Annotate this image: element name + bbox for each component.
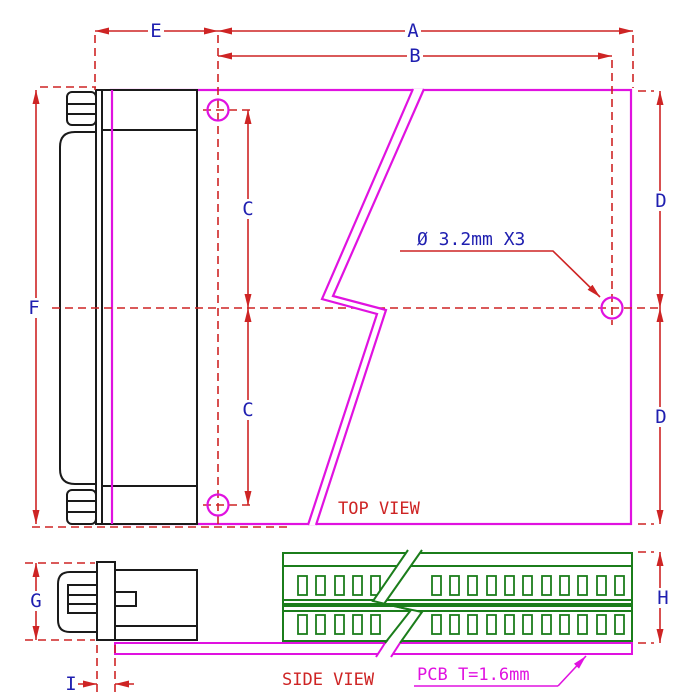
dim-label-g: G [30, 590, 41, 612]
terminal-slot [468, 576, 477, 595]
terminal-slot [578, 615, 587, 634]
terminal-slot [316, 576, 325, 595]
terminal-slot [468, 615, 477, 634]
dim-label-a: A [407, 20, 419, 42]
dim-label-d-upper: D [655, 190, 666, 212]
terminal-slot [371, 615, 380, 634]
terminal-slot [597, 576, 606, 595]
terminal-slot [578, 576, 587, 595]
terminal-slot [353, 576, 362, 595]
terminal-slot [597, 615, 606, 634]
jackscrew-top [67, 92, 96, 125]
terminal-slot [298, 615, 307, 634]
terminal-slot [542, 615, 551, 634]
terminal-slot [505, 576, 514, 595]
terminal-slot [615, 615, 624, 634]
top-view: E A B C C D D F Ø 3.2mm X3 TOP VIEW [26, 20, 669, 527]
dsub-connector-side [58, 562, 197, 640]
dim-label-d-lower: D [655, 406, 666, 428]
dim-label-i: I [65, 673, 76, 695]
connector-body [102, 90, 197, 524]
terminal-slot [560, 576, 569, 595]
terminal-slot [432, 576, 441, 595]
hole-callout: Ø 3.2mm X3 [417, 229, 525, 250]
dsub-connector-top [60, 90, 197, 524]
terminal-slot [505, 615, 514, 634]
terminal-slot [615, 576, 624, 595]
top-view-label: TOP VIEW [338, 499, 421, 519]
jackscrew-bottom [67, 490, 96, 524]
technical-drawing-page: E A B C C D D F Ø 3.2mm X3 TOP VIEW [0, 0, 700, 700]
terminal-slot [432, 615, 441, 634]
terminal-slot [316, 615, 325, 634]
dim-label-f: F [28, 297, 39, 319]
terminal-block [283, 553, 632, 641]
terminal-slot [523, 576, 532, 595]
terminal-slot [450, 615, 459, 634]
dim-label-e: E [150, 20, 161, 42]
terminal-slot [523, 615, 532, 634]
terminal-slot [298, 576, 307, 595]
dim-label-c-upper: C [242, 198, 253, 220]
side-view-label: SIDE VIEW [282, 670, 375, 690]
terminal-slot [335, 615, 344, 634]
terminal-slot [335, 576, 344, 595]
technical-drawing: E A B C C D D F Ø 3.2mm X3 TOP VIEW [0, 0, 700, 700]
dim-label-c-lower: C [242, 399, 253, 421]
pcb-edge-side [115, 643, 632, 654]
terminal-slot [487, 576, 496, 595]
dim-label-h: H [657, 587, 668, 609]
dim-label-b: B [409, 45, 420, 67]
pcb-thickness-note: PCB T=1.6mm [417, 665, 530, 685]
terminal-slot [450, 576, 459, 595]
terminal-slot [542, 576, 551, 595]
connector-latch-tab [115, 592, 136, 606]
connector-flange-side [97, 562, 115, 640]
terminal-slot [560, 615, 569, 634]
jackscrew-side [68, 585, 97, 613]
terminal-slot [487, 615, 496, 634]
terminal-slot [353, 615, 362, 634]
